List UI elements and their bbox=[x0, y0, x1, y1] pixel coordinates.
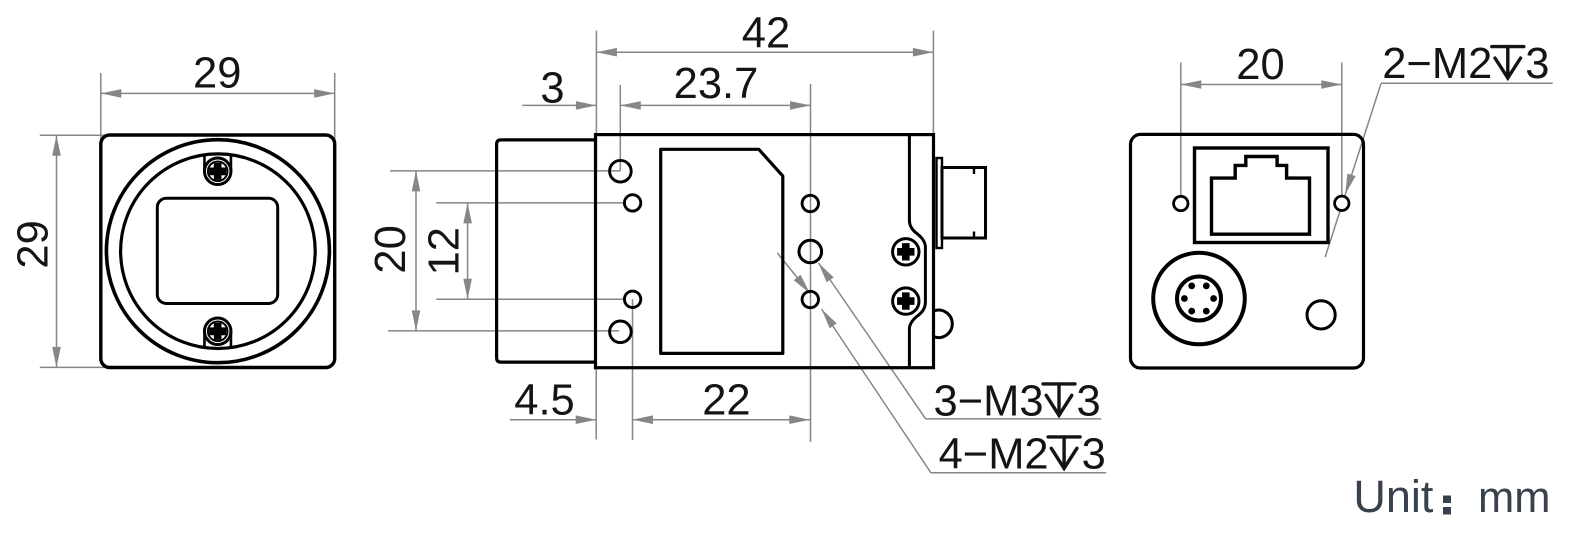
svg-text:2−M2: 2−M2 bbox=[1382, 40, 1492, 88]
svg-text:42: 42 bbox=[742, 9, 790, 57]
svg-text:Unit: Unit bbox=[1353, 471, 1434, 522]
svg-text:mm: mm bbox=[1478, 474, 1550, 522]
svg-text:4−M2: 4−M2 bbox=[939, 430, 1049, 478]
svg-text:20: 20 bbox=[1236, 41, 1284, 89]
svg-text:20: 20 bbox=[367, 225, 415, 273]
svg-text:12: 12 bbox=[421, 227, 469, 275]
svg-text:3: 3 bbox=[1525, 40, 1549, 88]
svg-text:4.5: 4.5 bbox=[514, 377, 574, 425]
svg-text:3−M3: 3−M3 bbox=[934, 377, 1044, 425]
svg-text:3: 3 bbox=[1077, 377, 1101, 425]
svg-text:3: 3 bbox=[540, 65, 564, 113]
svg-text:29: 29 bbox=[10, 220, 58, 268]
svg-text:23.7: 23.7 bbox=[674, 60, 759, 108]
svg-text:3: 3 bbox=[1082, 430, 1106, 478]
svg-text:22: 22 bbox=[702, 377, 750, 425]
svg-text:29: 29 bbox=[193, 50, 241, 98]
